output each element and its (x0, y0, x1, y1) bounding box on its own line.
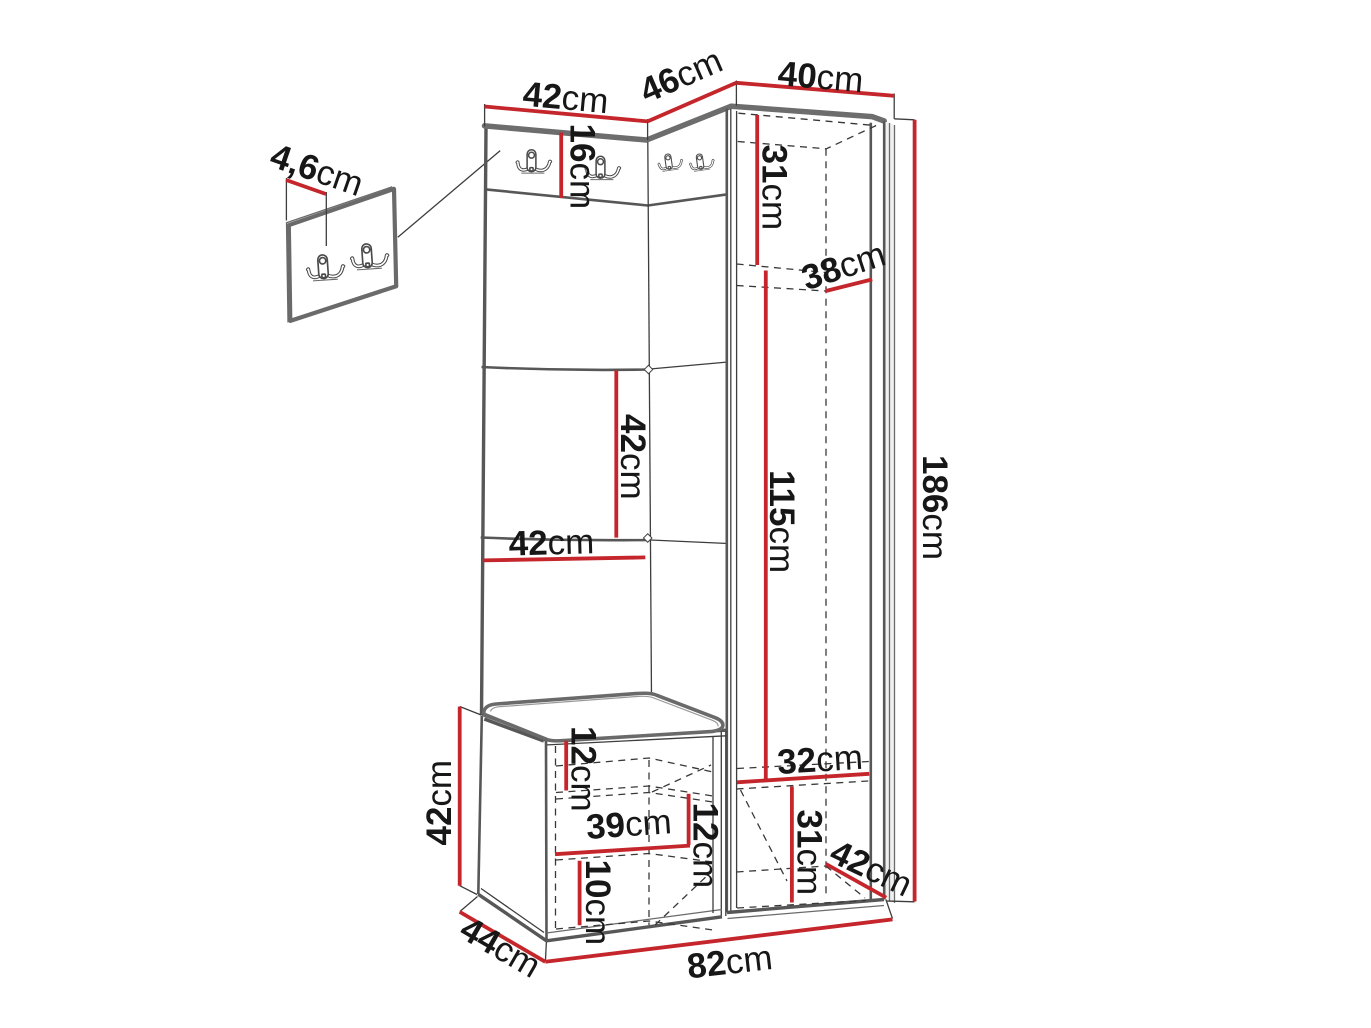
svg-text:10cm: 10cm (578, 860, 617, 946)
svg-text:12cm: 12cm (564, 726, 603, 812)
svg-text:16cm: 16cm (563, 124, 602, 210)
svg-text:12cm: 12cm (685, 803, 724, 889)
svg-text:42cm: 42cm (613, 414, 652, 500)
svg-text:31cm: 31cm (789, 810, 828, 896)
svg-text:186cm: 186cm (915, 455, 954, 560)
svg-text:115cm: 115cm (762, 470, 801, 573)
svg-text:42cm: 42cm (420, 760, 459, 846)
svg-text:40cm: 40cm (776, 54, 865, 100)
svg-text:39cm: 39cm (585, 802, 673, 847)
svg-text:32cm: 32cm (776, 738, 864, 782)
svg-text:31cm: 31cm (755, 145, 794, 231)
svg-text:42cm: 42cm (508, 522, 595, 563)
svg-text:42cm: 42cm (521, 75, 610, 122)
